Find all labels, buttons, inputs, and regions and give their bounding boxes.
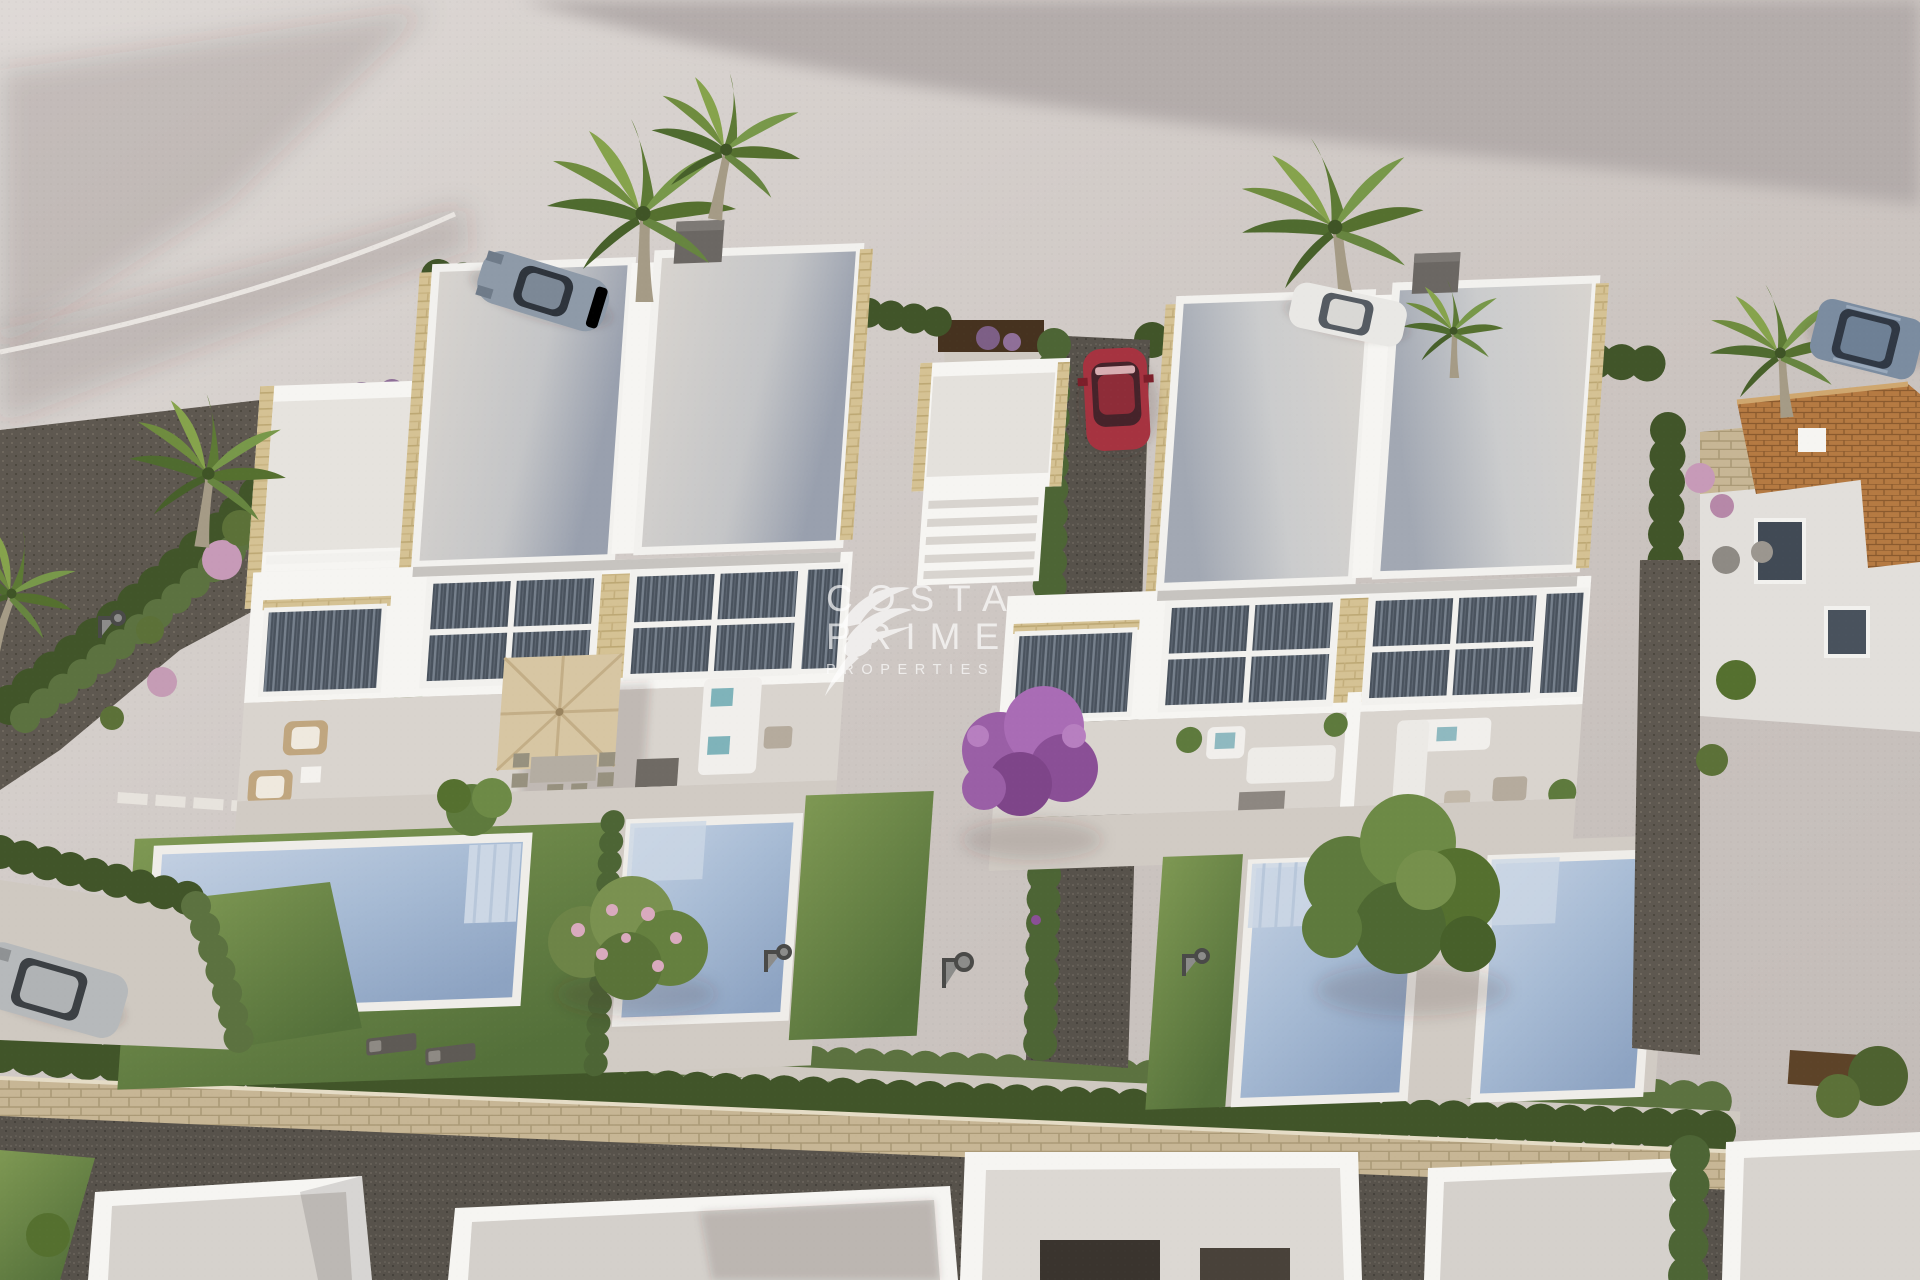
render-scene: COSTA PRIME PROPERTIES bbox=[0, 0, 1920, 1280]
scene-canvas bbox=[0, 0, 1920, 1280]
